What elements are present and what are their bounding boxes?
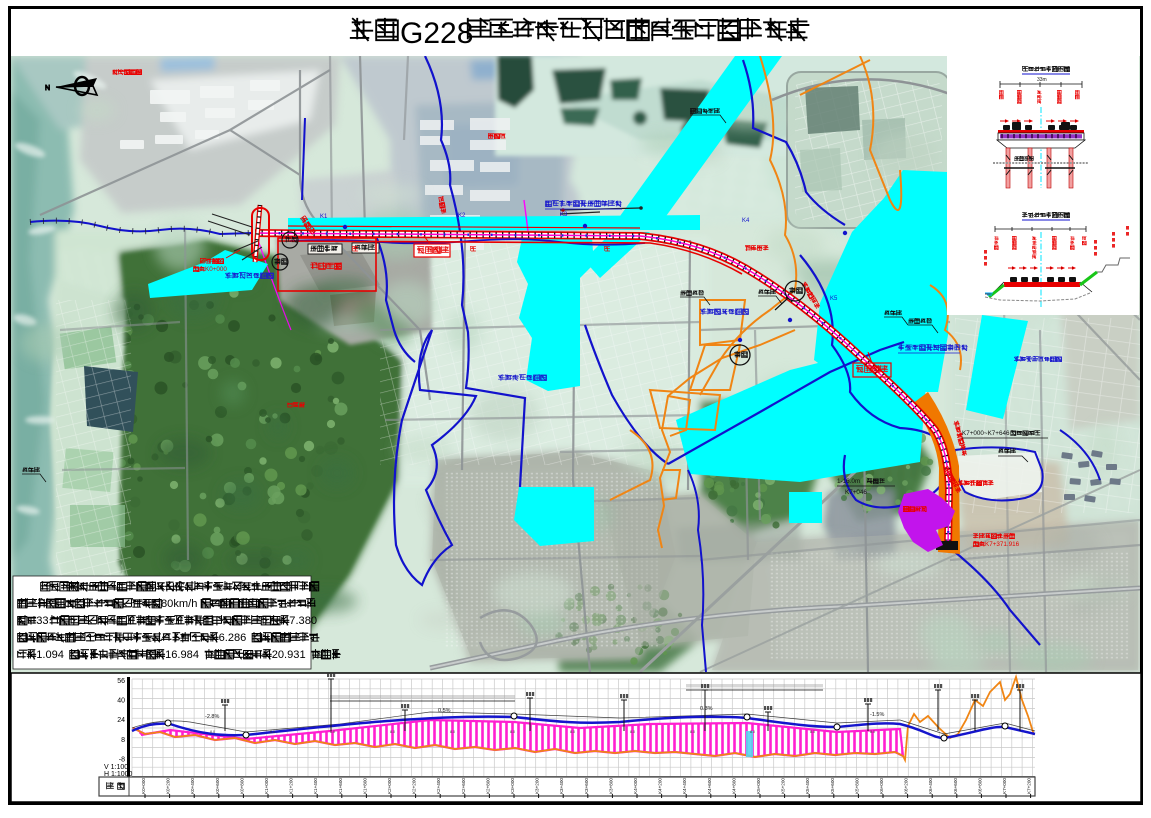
svg-text:K2+000: K2+000: [387, 778, 392, 794]
svg-text:24: 24: [117, 717, 125, 724]
svg-text:K7+200: K7+200: [1027, 778, 1032, 794]
svg-text:20.931: 20.931: [272, 649, 306, 661]
svg-text:16.984: 16.984: [165, 649, 199, 661]
svg-text:G228: G228: [400, 17, 473, 50]
svg-text:1.094: 1.094: [36, 649, 64, 661]
svg-text:80km/h: 80km/h: [161, 598, 197, 610]
svg-text:K6+200: K6+200: [904, 778, 909, 794]
svg-text:33m: 33m: [1037, 77, 1047, 83]
svg-text:K1+000: K1+000: [264, 778, 269, 794]
svg-text:8.0: 8.0: [870, 730, 875, 734]
svg-text:8.0: 8.0: [210, 730, 215, 734]
svg-text:K5+000: K5+000: [756, 778, 761, 794]
svg-text:N: N: [45, 85, 50, 92]
svg-text:K7+046: K7+046: [845, 489, 867, 496]
svg-text:K7+000: K7+000: [1002, 778, 1007, 794]
svg-text:K6+800: K6+800: [977, 778, 982, 794]
svg-text:33: 33: [36, 615, 48, 627]
svg-text:-1.5%: -1.5%: [870, 712, 884, 718]
svg-text:K6+000: K6+000: [879, 778, 884, 794]
svg-text:8.0: 8.0: [270, 730, 275, 734]
svg-text:K5+800: K5+800: [854, 778, 859, 794]
svg-text:8.0: 8.0: [330, 730, 335, 734]
svg-text:K2+400: K2+400: [436, 778, 441, 794]
svg-text:-2.8%: -2.8%: [205, 714, 219, 720]
svg-text:8.0: 8.0: [570, 730, 575, 734]
svg-text:K3+400: K3+400: [559, 778, 564, 794]
svg-text:K5+200: K5+200: [781, 778, 786, 794]
svg-text:K1+200: K1+200: [289, 778, 294, 794]
svg-text:56: 56: [117, 678, 125, 685]
svg-text:40: 40: [117, 698, 125, 705]
svg-text:K5: K5: [830, 296, 838, 302]
svg-text:K4+600: K4+600: [707, 778, 712, 794]
svg-text:K4: K4: [742, 218, 750, 224]
svg-text:7.380: 7.380: [289, 615, 317, 627]
svg-text:K4+200: K4+200: [658, 778, 663, 794]
svg-text:K4+800: K4+800: [731, 778, 736, 794]
svg-text:K6+400: K6+400: [928, 778, 933, 794]
svg-text:K0+400: K0+400: [190, 778, 195, 794]
svg-text:K3+200: K3+200: [535, 778, 540, 794]
svg-text:6.286: 6.286: [219, 632, 247, 644]
svg-text:K3: K3: [560, 212, 568, 218]
svg-text:8.0: 8.0: [450, 730, 455, 734]
svg-text:8.0: 8.0: [690, 730, 695, 734]
svg-text:K0+800: K0+800: [239, 778, 244, 794]
svg-text:V 1:100: V 1:100: [104, 764, 128, 771]
svg-text:K2: K2: [458, 213, 466, 219]
svg-text:K3+800: K3+800: [608, 778, 613, 794]
svg-text:K4+000: K4+000: [633, 778, 638, 794]
svg-text:K0+000: K0+000: [205, 266, 227, 273]
svg-text:K1+600: K1+600: [338, 778, 343, 794]
svg-text:K2+200: K2+200: [412, 778, 417, 794]
svg-text:8: 8: [121, 737, 125, 744]
svg-text:0.3%: 0.3%: [700, 706, 713, 712]
svg-text:0.5%: 0.5%: [438, 708, 451, 714]
svg-text:K0+600: K0+600: [215, 778, 220, 794]
svg-text:1-16.0m: 1-16.0m: [837, 478, 860, 485]
svg-text:8.0: 8.0: [750, 730, 755, 734]
svg-text:K1+800: K1+800: [362, 778, 367, 794]
svg-text:K2+800: K2+800: [485, 778, 490, 794]
svg-text:8.0: 8.0: [630, 730, 635, 734]
svg-text:K1: K1: [320, 214, 328, 220]
svg-text:8.0: 8.0: [810, 730, 815, 734]
svg-text:K5+600: K5+600: [830, 778, 835, 794]
svg-text:K2+600: K2+600: [461, 778, 466, 794]
svg-text:8.0: 8.0: [510, 730, 515, 734]
svg-text:-8: -8: [119, 756, 125, 763]
svg-text:K5+400: K5+400: [805, 778, 810, 794]
svg-text:K1+400: K1+400: [313, 778, 318, 794]
svg-text:8.0: 8.0: [390, 730, 395, 734]
svg-text:K3+000: K3+000: [510, 778, 515, 794]
svg-text:K7+000~K7+646: K7+000~K7+646: [962, 430, 1010, 437]
svg-text:K3+600: K3+600: [584, 778, 589, 794]
svg-text:K4+400: K4+400: [682, 778, 687, 794]
svg-text:K7+371.916: K7+371.916: [985, 541, 1020, 548]
svg-text:K0+200: K0+200: [166, 778, 171, 794]
svg-text:K6+600: K6+600: [953, 778, 958, 794]
svg-text:K0+000: K0+000: [141, 778, 146, 794]
